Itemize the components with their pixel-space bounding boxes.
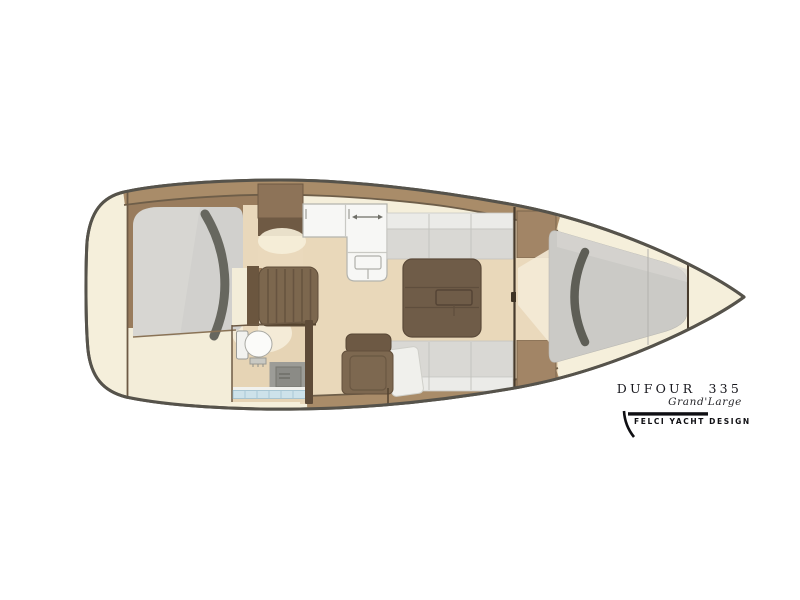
settee-top-back <box>387 213 513 229</box>
model-name: DUFOUR 335 <box>612 381 742 396</box>
wardrobe-upper <box>258 184 303 218</box>
table-leaf <box>436 290 472 305</box>
head-forward-deck <box>232 268 249 326</box>
wardrobe-floor-highlight <box>258 228 306 254</box>
aft-cabin-floor <box>127 328 233 404</box>
settee-top-seat <box>387 229 513 259</box>
head-door-frame <box>305 320 313 404</box>
yacht-floorplan-page: DUFOUR 335 Grand'Large FELCI YACHT DESIG… <box>0 0 800 600</box>
shower-tray-inner <box>276 367 301 387</box>
nav-seat-back <box>346 334 391 353</box>
designer-name: FELCI YACHT DESIGN <box>634 417 751 426</box>
companionway-side-rail <box>247 266 259 326</box>
series-name: Grand'Large <box>612 396 742 408</box>
toilet-bowl <box>245 331 272 357</box>
shower-ledge <box>233 387 306 391</box>
branding-block: DUFOUR 335 Grand'Large FELCI YACHT DESIG… <box>612 381 742 436</box>
floorplan-drawing <box>0 0 800 600</box>
designer-row: FELCI YACHT DESIGN <box>612 410 742 436</box>
